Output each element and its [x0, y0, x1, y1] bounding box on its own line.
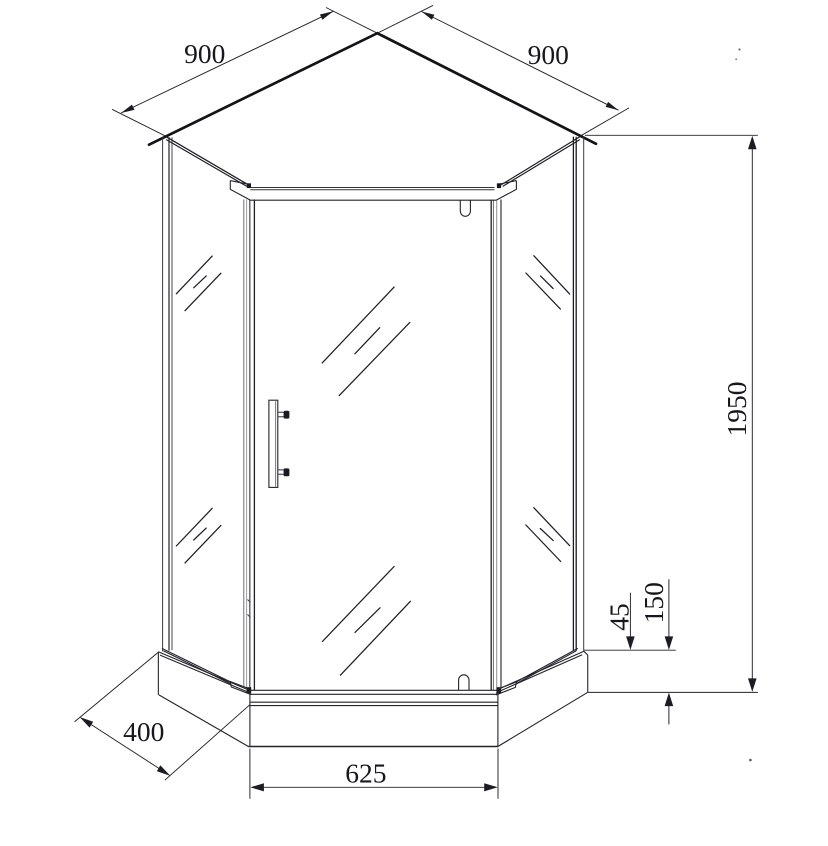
svg-text:150: 150: [638, 582, 669, 623]
svg-text:625: 625: [345, 758, 386, 789]
svg-text:1950: 1950: [721, 382, 752, 437]
svg-text:45: 45: [604, 603, 635, 631]
svg-text:400: 400: [123, 716, 164, 747]
svg-text:900: 900: [528, 39, 569, 70]
svg-text:900: 900: [184, 38, 225, 69]
